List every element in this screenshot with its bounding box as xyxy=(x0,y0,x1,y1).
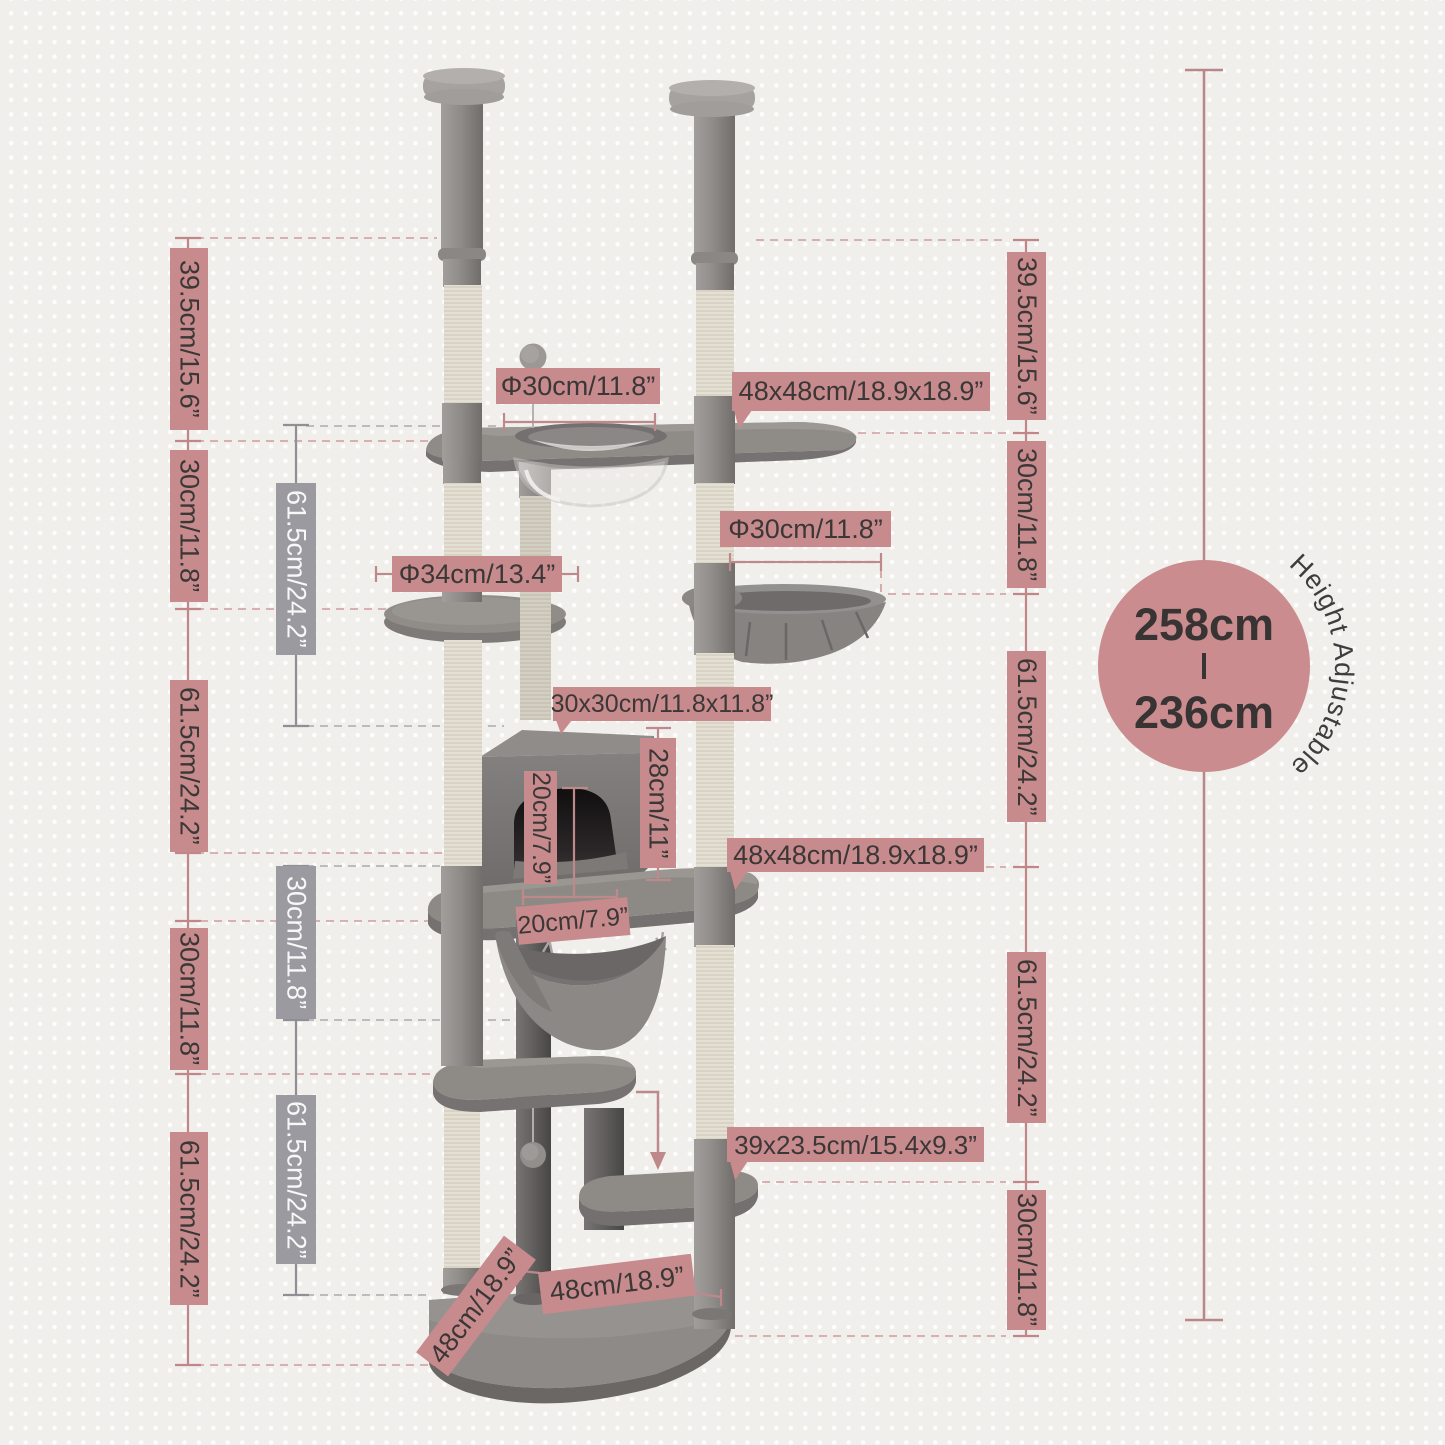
svg-text:258cm: 258cm xyxy=(1134,599,1274,650)
svg-text:236cm: 236cm xyxy=(1134,687,1274,738)
